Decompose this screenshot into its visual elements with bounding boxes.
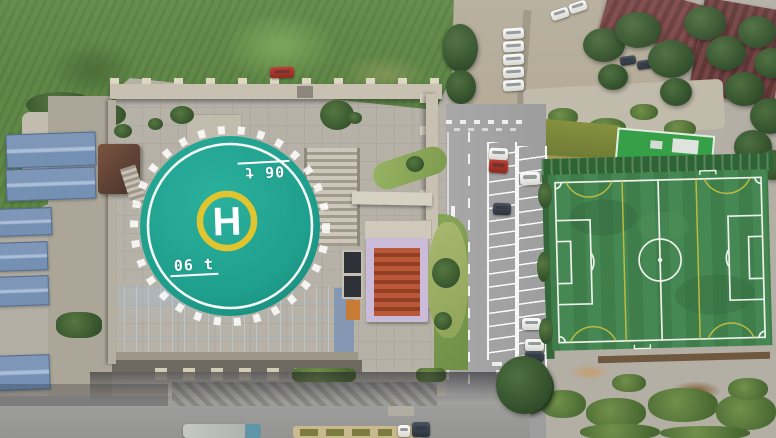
planter-bush (348, 112, 362, 124)
tree (684, 6, 726, 40)
soil-shrub (728, 378, 768, 400)
mound-tree (434, 312, 452, 330)
soil-shrub (612, 374, 646, 392)
tree (442, 24, 478, 72)
parked-car-white (398, 425, 410, 437)
west-inner-wall (108, 100, 116, 364)
giveway-marking (446, 120, 528, 124)
parking-stall-column-west (487, 142, 517, 360)
parked-car-white (489, 148, 508, 161)
tree (750, 98, 776, 134)
fence-bush (539, 318, 553, 344)
fence-bush (538, 182, 552, 208)
helipad-letter: H (202, 198, 252, 248)
footbridge (352, 191, 432, 205)
tree (446, 70, 476, 104)
planter-box (300, 429, 318, 436)
soil-shrub (660, 426, 750, 438)
planter-box (352, 429, 370, 436)
parked-car-red (489, 159, 509, 173)
tree (738, 16, 776, 48)
tree (660, 78, 692, 106)
helipad-weight-marking-south: 06 t (170, 256, 219, 278)
road-tree (496, 356, 552, 414)
warehouse-roof (5, 166, 96, 201)
parked-car-white (503, 79, 525, 91)
bus-roof (183, 424, 247, 438)
parked-car-dark (493, 203, 511, 216)
football-pitch-group (541, 153, 776, 359)
parked-car-white (503, 27, 525, 39)
road-center-dashed-line (468, 132, 470, 394)
soil-shrub (580, 424, 660, 438)
alley-tree-cluster (56, 312, 102, 338)
warehouse-roof (0, 207, 52, 237)
parked-car-dark (412, 422, 430, 437)
bus-cab-teal (245, 424, 261, 438)
tree (648, 40, 694, 78)
warehouse-roof (0, 275, 50, 307)
soil-shrub (648, 388, 718, 422)
annex-wall (364, 220, 432, 240)
entrance-shadow (90, 372, 520, 402)
helipad-weight-marking-north: 06 t (238, 160, 291, 182)
north-perimeter-wall (110, 84, 442, 99)
tree (615, 12, 661, 48)
warehouse-roof (5, 131, 96, 168)
parked-car-white (503, 53, 525, 65)
rooftop-vent (342, 250, 363, 275)
fence-bush (537, 252, 550, 282)
island-tree (406, 156, 424, 172)
tree (598, 64, 628, 90)
road-marking (492, 362, 502, 366)
courtyard-bush (170, 106, 194, 124)
parked-car-white (520, 172, 540, 186)
rooftop-vent (342, 274, 363, 299)
warehouse-roof (0, 241, 48, 272)
tree (706, 36, 746, 70)
rooftop-unit (650, 140, 663, 149)
car-behind-wall-red (270, 67, 294, 79)
planter-box (326, 429, 344, 436)
aerial-photo-scene: H 06 t 06 t (0, 0, 776, 438)
orange-awning (346, 300, 360, 320)
north-wall-gate (297, 86, 313, 98)
scaffold-brick-face (374, 248, 420, 316)
planter-box (378, 429, 392, 436)
giveway-marking (454, 128, 524, 131)
mound-tree (432, 258, 460, 288)
parked-car-white (503, 66, 525, 78)
parked-car-white (503, 40, 525, 52)
football-pitch (541, 153, 776, 359)
rooftop-unit (672, 138, 699, 154)
